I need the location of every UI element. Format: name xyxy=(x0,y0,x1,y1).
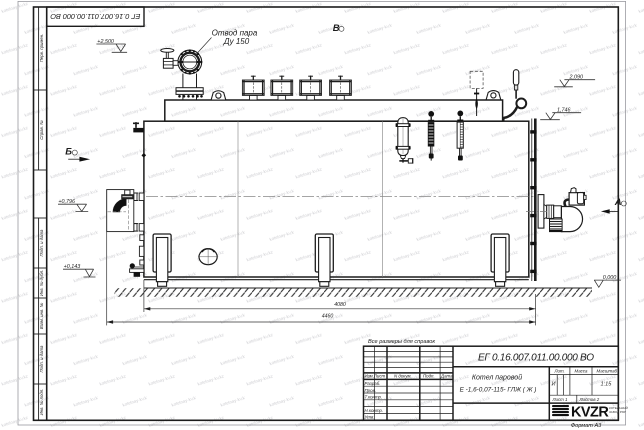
svg-text:ЗАВОД РЗР: ЗАВОД РЗР xyxy=(609,410,626,414)
svg-text:Подп. и дата: Подп. и дата xyxy=(39,229,44,257)
svg-text:KVZR: KVZR xyxy=(571,405,609,421)
svg-text:2,090: 2,090 xyxy=(569,75,584,81)
svg-text:Взам. инв. №: Взам. инв. № xyxy=(39,302,44,329)
svg-text:Утв.: Утв. xyxy=(365,415,375,420)
svg-text:Изм.Лист: Изм.Лист xyxy=(365,374,386,379)
svg-text:Разраб.: Разраб. xyxy=(365,381,381,386)
svg-text:Котел паровой: Котел паровой xyxy=(472,374,522,382)
svg-text:Масштаб: Масштаб xyxy=(597,368,618,373)
svg-text:Лист 1: Лист 1 xyxy=(552,397,569,402)
svg-text:4080: 4080 xyxy=(334,302,346,308)
svg-text:ЕГ 0.16.007.011.00.000 ВО: ЕГ 0.16.007.011.00.000 ВО xyxy=(50,12,140,21)
svg-text:Инв. № подл.: Инв. № подл. xyxy=(39,389,44,416)
svg-text:Листов 2: Листов 2 xyxy=(579,397,600,402)
svg-text:Справ. №: Справ. № xyxy=(39,120,44,140)
svg-text:Инв. № дубл.: Инв. № дубл. xyxy=(39,270,44,296)
svg-text:Ду 150: Ду 150 xyxy=(223,37,250,46)
svg-text:1,746: 1,746 xyxy=(557,108,571,114)
svg-text:Пров.: Пров. xyxy=(365,388,377,393)
svg-text:Дата: Дата xyxy=(440,374,453,379)
svg-text:Т.контр.: Т.контр. xyxy=(365,394,383,399)
svg-text:Лит.: Лит. xyxy=(554,368,565,373)
svg-text:Б: Б xyxy=(65,147,72,158)
svg-text:И: И xyxy=(552,382,556,388)
svg-text:ЕГ 0.16.007.011.00.000 ВО: ЕГ 0.16.007.011.00.000 ВО xyxy=(478,353,594,364)
svg-text:+0,796: +0,796 xyxy=(58,199,75,205)
svg-text:Масса: Масса xyxy=(575,368,589,373)
svg-text:Все размеры для справок: Все размеры для справок xyxy=(368,339,435,345)
svg-text:4460: 4460 xyxy=(322,313,334,319)
svg-text:Подп.: Подп. xyxy=(423,374,435,379)
svg-text:Перв. примен.: Перв. примен. xyxy=(39,34,44,63)
svg-text:Формат А3: Формат А3 xyxy=(571,423,602,429)
svg-text:Подп. и дата: Подп. и дата xyxy=(39,345,44,373)
svg-text:Н.контр.: Н.контр. xyxy=(365,408,384,413)
svg-text:1:15: 1:15 xyxy=(601,382,613,388)
svg-text:0,000: 0,000 xyxy=(603,275,617,281)
svg-text:Е -1,6-0,07-115- ГЛЖ ( Ж ): Е -1,6-0,07-115- ГЛЖ ( Ж ) xyxy=(460,387,537,394)
svg-text:+2,500: +2,500 xyxy=(97,39,114,45)
svg-text:В: В xyxy=(333,23,340,34)
svg-text:+0,143: +0,143 xyxy=(64,264,81,270)
svg-text:N докум.: N докум. xyxy=(394,374,412,379)
svg-text:А: А xyxy=(614,197,622,208)
svg-text:Отвод пара: Отвод пара xyxy=(212,28,258,37)
